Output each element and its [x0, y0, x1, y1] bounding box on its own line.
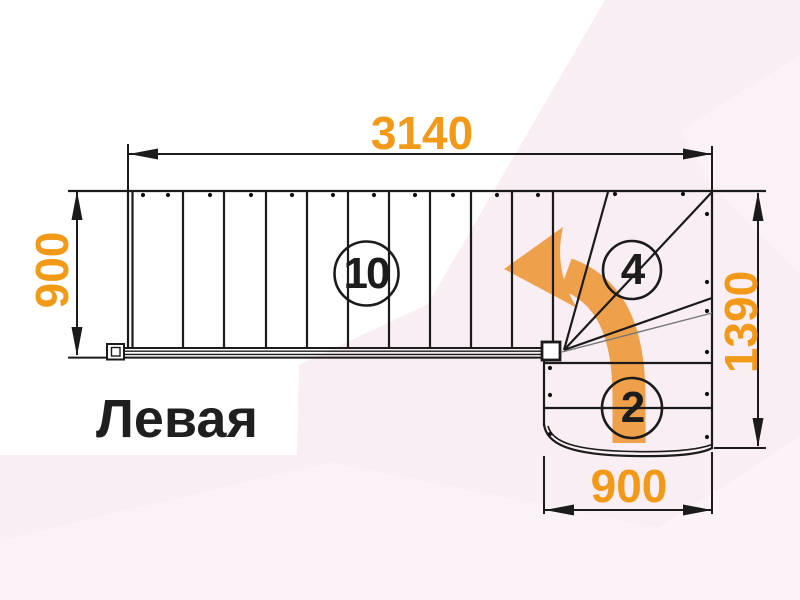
step-count-winders: 4	[592, 246, 672, 294]
dim-total-run: 3140	[322, 110, 522, 156]
dim-turn-height: 1390	[718, 262, 764, 382]
stair-plan-page: 3140 900 1390 900 10 4 2 Левая	[0, 0, 800, 600]
stair-plan-drawing	[0, 0, 800, 600]
orientation-label: Левая	[96, 392, 258, 446]
dim-lower-flight-width: 900	[529, 463, 729, 509]
step-count-lower-flight: 2	[592, 384, 672, 432]
step-count-upper-flight: 10	[326, 250, 406, 298]
dim-upper-flight-width: 900	[29, 210, 75, 330]
